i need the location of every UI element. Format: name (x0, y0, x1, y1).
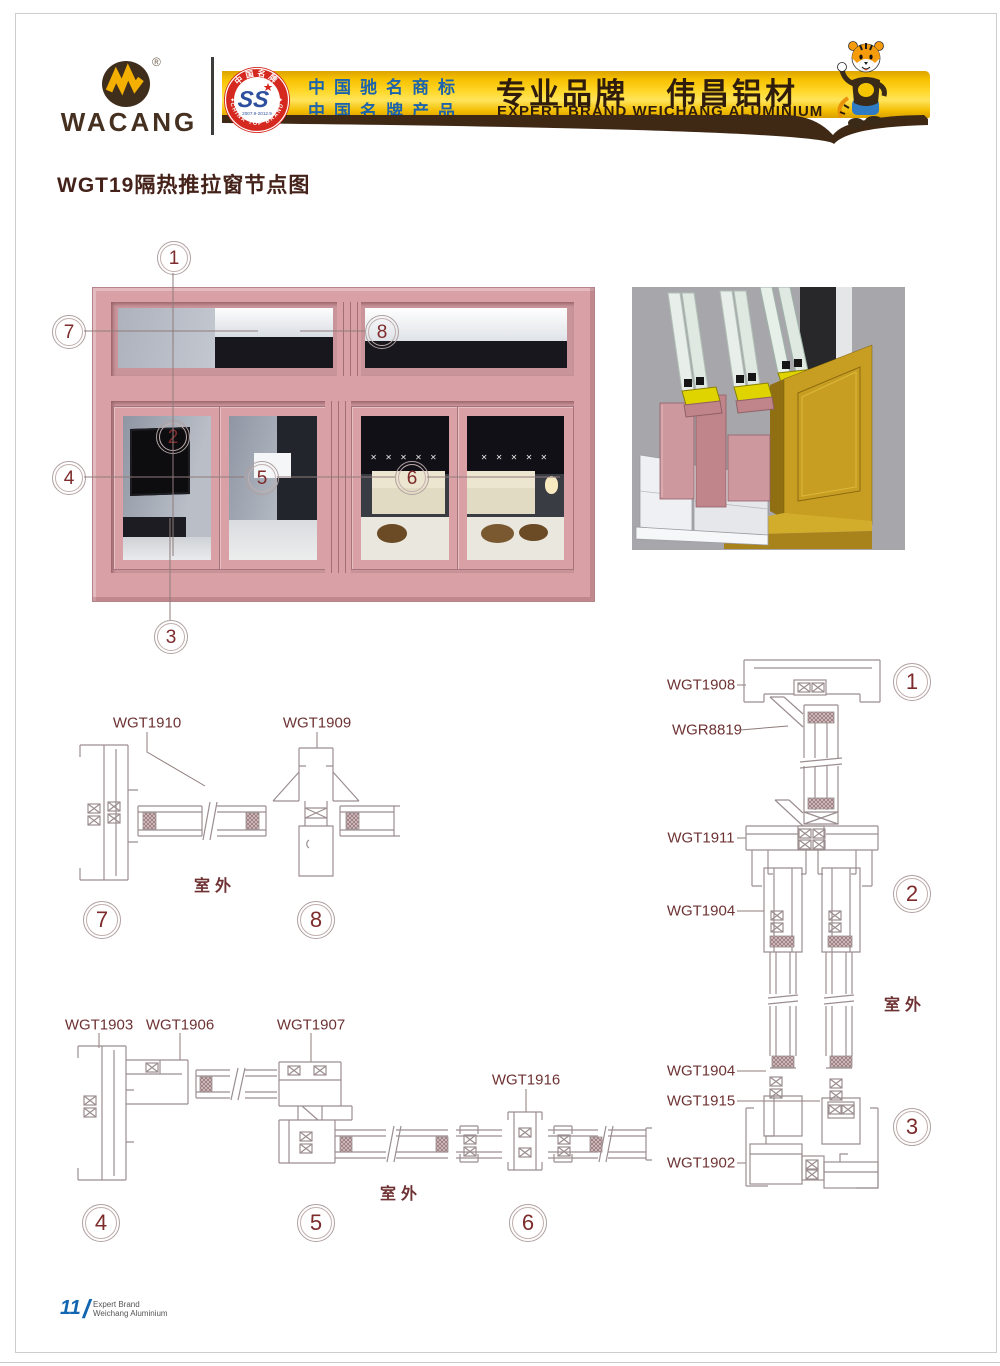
outdoor-label-top-left: 室外 (194, 872, 236, 896)
section-callout-6: 6 (509, 1204, 547, 1242)
page-border (15, 13, 997, 1353)
section-callout-8: 8 (297, 901, 335, 939)
profile-label-wgt1916: WGT1916 (492, 1072, 560, 1089)
profile-label-wgt1907: WGT1907 (277, 1017, 345, 1034)
section-callout-1: 1 (893, 663, 931, 701)
tiger-mascot-icon (834, 36, 898, 128)
elevation-callout-8: 8 (365, 315, 399, 349)
china-top-brand-badge: 中国名牌 CHINA TOP BRAND ✦ ✦ SS 2007.9-2012.… (222, 65, 292, 135)
footer-line-1: Expert Brand (93, 1300, 168, 1309)
footer-line-2: Weichang Aluminium (93, 1309, 168, 1318)
interior-shadow (365, 341, 567, 368)
profile-label-wgt1906: WGT1906 (146, 1017, 214, 1034)
floor (123, 537, 211, 560)
wacang-logo-icon (101, 60, 151, 108)
elevation-callout-4: 4 (52, 461, 86, 495)
slogan-en: EXPERT BRAND WEICHANG ALUMINIUM (497, 103, 823, 120)
profile-label-wgt1915: WGT1915 (667, 1093, 735, 1110)
claim-line-1: 中国驰名商标 (308, 76, 464, 100)
lamp-glow (545, 476, 559, 493)
wall-deco-marks: ✕ ✕ ✕ ✕ ✕ (361, 453, 449, 462)
profile-3d-render (632, 287, 905, 550)
svg-text:✦: ✦ (278, 97, 283, 104)
headboard-wall (467, 416, 564, 474)
mullion-shading (325, 401, 351, 573)
section-callout-5: 5 (297, 1204, 335, 1242)
registered-mark: ® (152, 55, 161, 69)
profile-label-wgt1908: WGT1908 (667, 677, 735, 694)
elevation-callout-5: 5 (245, 461, 279, 495)
brand-wordmark: WACANG (54, 107, 204, 138)
footer-slash: / (83, 1298, 90, 1320)
elevation-callout-7: 7 (52, 315, 86, 349)
media-console (123, 517, 186, 537)
outdoor-label-right: 室外 (884, 991, 926, 1015)
pillow (481, 524, 514, 543)
claims-block: 中国驰名商标 中国名牌产品 (308, 76, 464, 124)
section-callout-7: 7 (83, 901, 121, 939)
rug (361, 517, 449, 560)
glass-reflection (215, 308, 333, 337)
interior-shadow (215, 337, 333, 368)
section-callout-4: 4 (82, 1204, 120, 1242)
sash-4-glass: ✕ ✕ ✕ ✕ ✕ (467, 416, 564, 560)
mullion-shading (337, 302, 361, 376)
header-divider (211, 57, 214, 135)
section-callout-2: 2 (893, 875, 931, 913)
rug (467, 517, 564, 560)
floor (229, 520, 317, 560)
profile-label-wgr8819: WGR8819 (672, 722, 742, 739)
page-number: 11 (60, 1298, 81, 1318)
svg-text:2007.9-2012.9: 2007.9-2012.9 (242, 111, 272, 116)
wall-deco-marks: ✕ ✕ ✕ ✕ ✕ (467, 453, 564, 462)
catalog-page: ® WACANG 中国名牌 CHINA TOP BRAND ✦ ✦ SS 200… (0, 0, 1000, 1366)
profile-label-wgt1902: WGT1902 (667, 1155, 735, 1172)
footer-text: Expert Brand Weichang Aluminium (93, 1298, 168, 1318)
pillow (377, 524, 407, 543)
claim-line-2: 中国名牌产品 (308, 100, 464, 124)
svg-text:✦: ✦ (230, 97, 235, 104)
elevation-callout-1: 1 (157, 241, 191, 275)
page-bottom-rule (0, 1362, 1000, 1363)
elevation-callout-3: 3 (154, 620, 188, 654)
section-callout-3: 3 (893, 1108, 931, 1146)
transom-opening (111, 302, 574, 376)
profile-label-wgt1904-upper: WGT1904 (667, 903, 735, 920)
profile-label-wgt1903: WGT1903 (65, 1017, 133, 1034)
profile-label-wgt1909: WGT1909 (283, 715, 351, 732)
profile-label-wgt1911: WGT1911 (667, 830, 734, 847)
elevation-callout-6: 6 (395, 461, 429, 495)
center-mullion (325, 401, 351, 573)
sash-4: ✕ ✕ ✕ ✕ ✕ (457, 406, 574, 570)
elevation-callout-2: 2 (156, 420, 190, 454)
page-title: WGT19隔热推拉窗节点图 (57, 169, 310, 199)
transom-glass-left (118, 308, 333, 368)
footer: 11 / Expert Brand Weichang Aluminium (60, 1298, 168, 1320)
transom-mullion (337, 302, 361, 376)
profile-label-wgt1910: WGT1910 (113, 715, 181, 732)
profile-label-wgt1904-lower: WGT1904 (667, 1063, 735, 1080)
bed (467, 471, 535, 514)
outdoor-label-bottom-left: 室外 (380, 1180, 422, 1204)
